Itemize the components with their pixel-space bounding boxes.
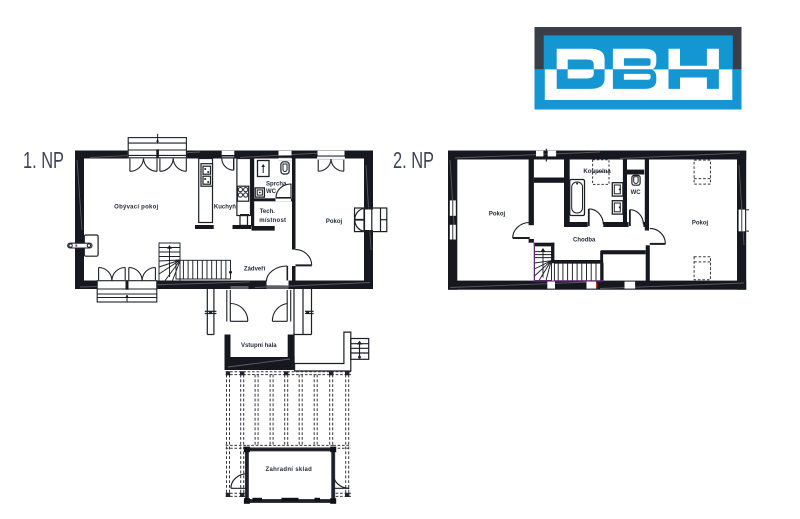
svg-text:Koupelna: Koupelna: [583, 169, 611, 175]
svg-text:Kuchyň: Kuchyň: [214, 205, 236, 211]
svg-text:místnost: místnost: [259, 218, 286, 224]
svg-text:Tech.: Tech.: [260, 209, 276, 215]
svg-text:Zádveří: Zádveří: [244, 266, 266, 272]
svg-text:WC: WC: [266, 189, 277, 195]
svg-text:WC: WC: [631, 190, 642, 196]
svg-text:Pokoj: Pokoj: [326, 219, 343, 225]
svg-text:Pokoj: Pokoj: [692, 221, 709, 227]
svg-text:Zahradní sklad: Zahradní sklad: [266, 467, 313, 473]
svg-text:Vstupní hala: Vstupní hala: [241, 343, 277, 349]
svg-text:Sprcha: Sprcha: [266, 181, 287, 187]
svg-text:Chodba: Chodba: [573, 237, 596, 243]
svg-text:Obývací pokoj: Obývací pokoj: [114, 204, 158, 210]
svg-text:Pokoj: Pokoj: [489, 212, 506, 218]
svg-text:2. NP: 2. NP: [393, 147, 434, 173]
svg-text:1. NP: 1. NP: [23, 147, 64, 173]
